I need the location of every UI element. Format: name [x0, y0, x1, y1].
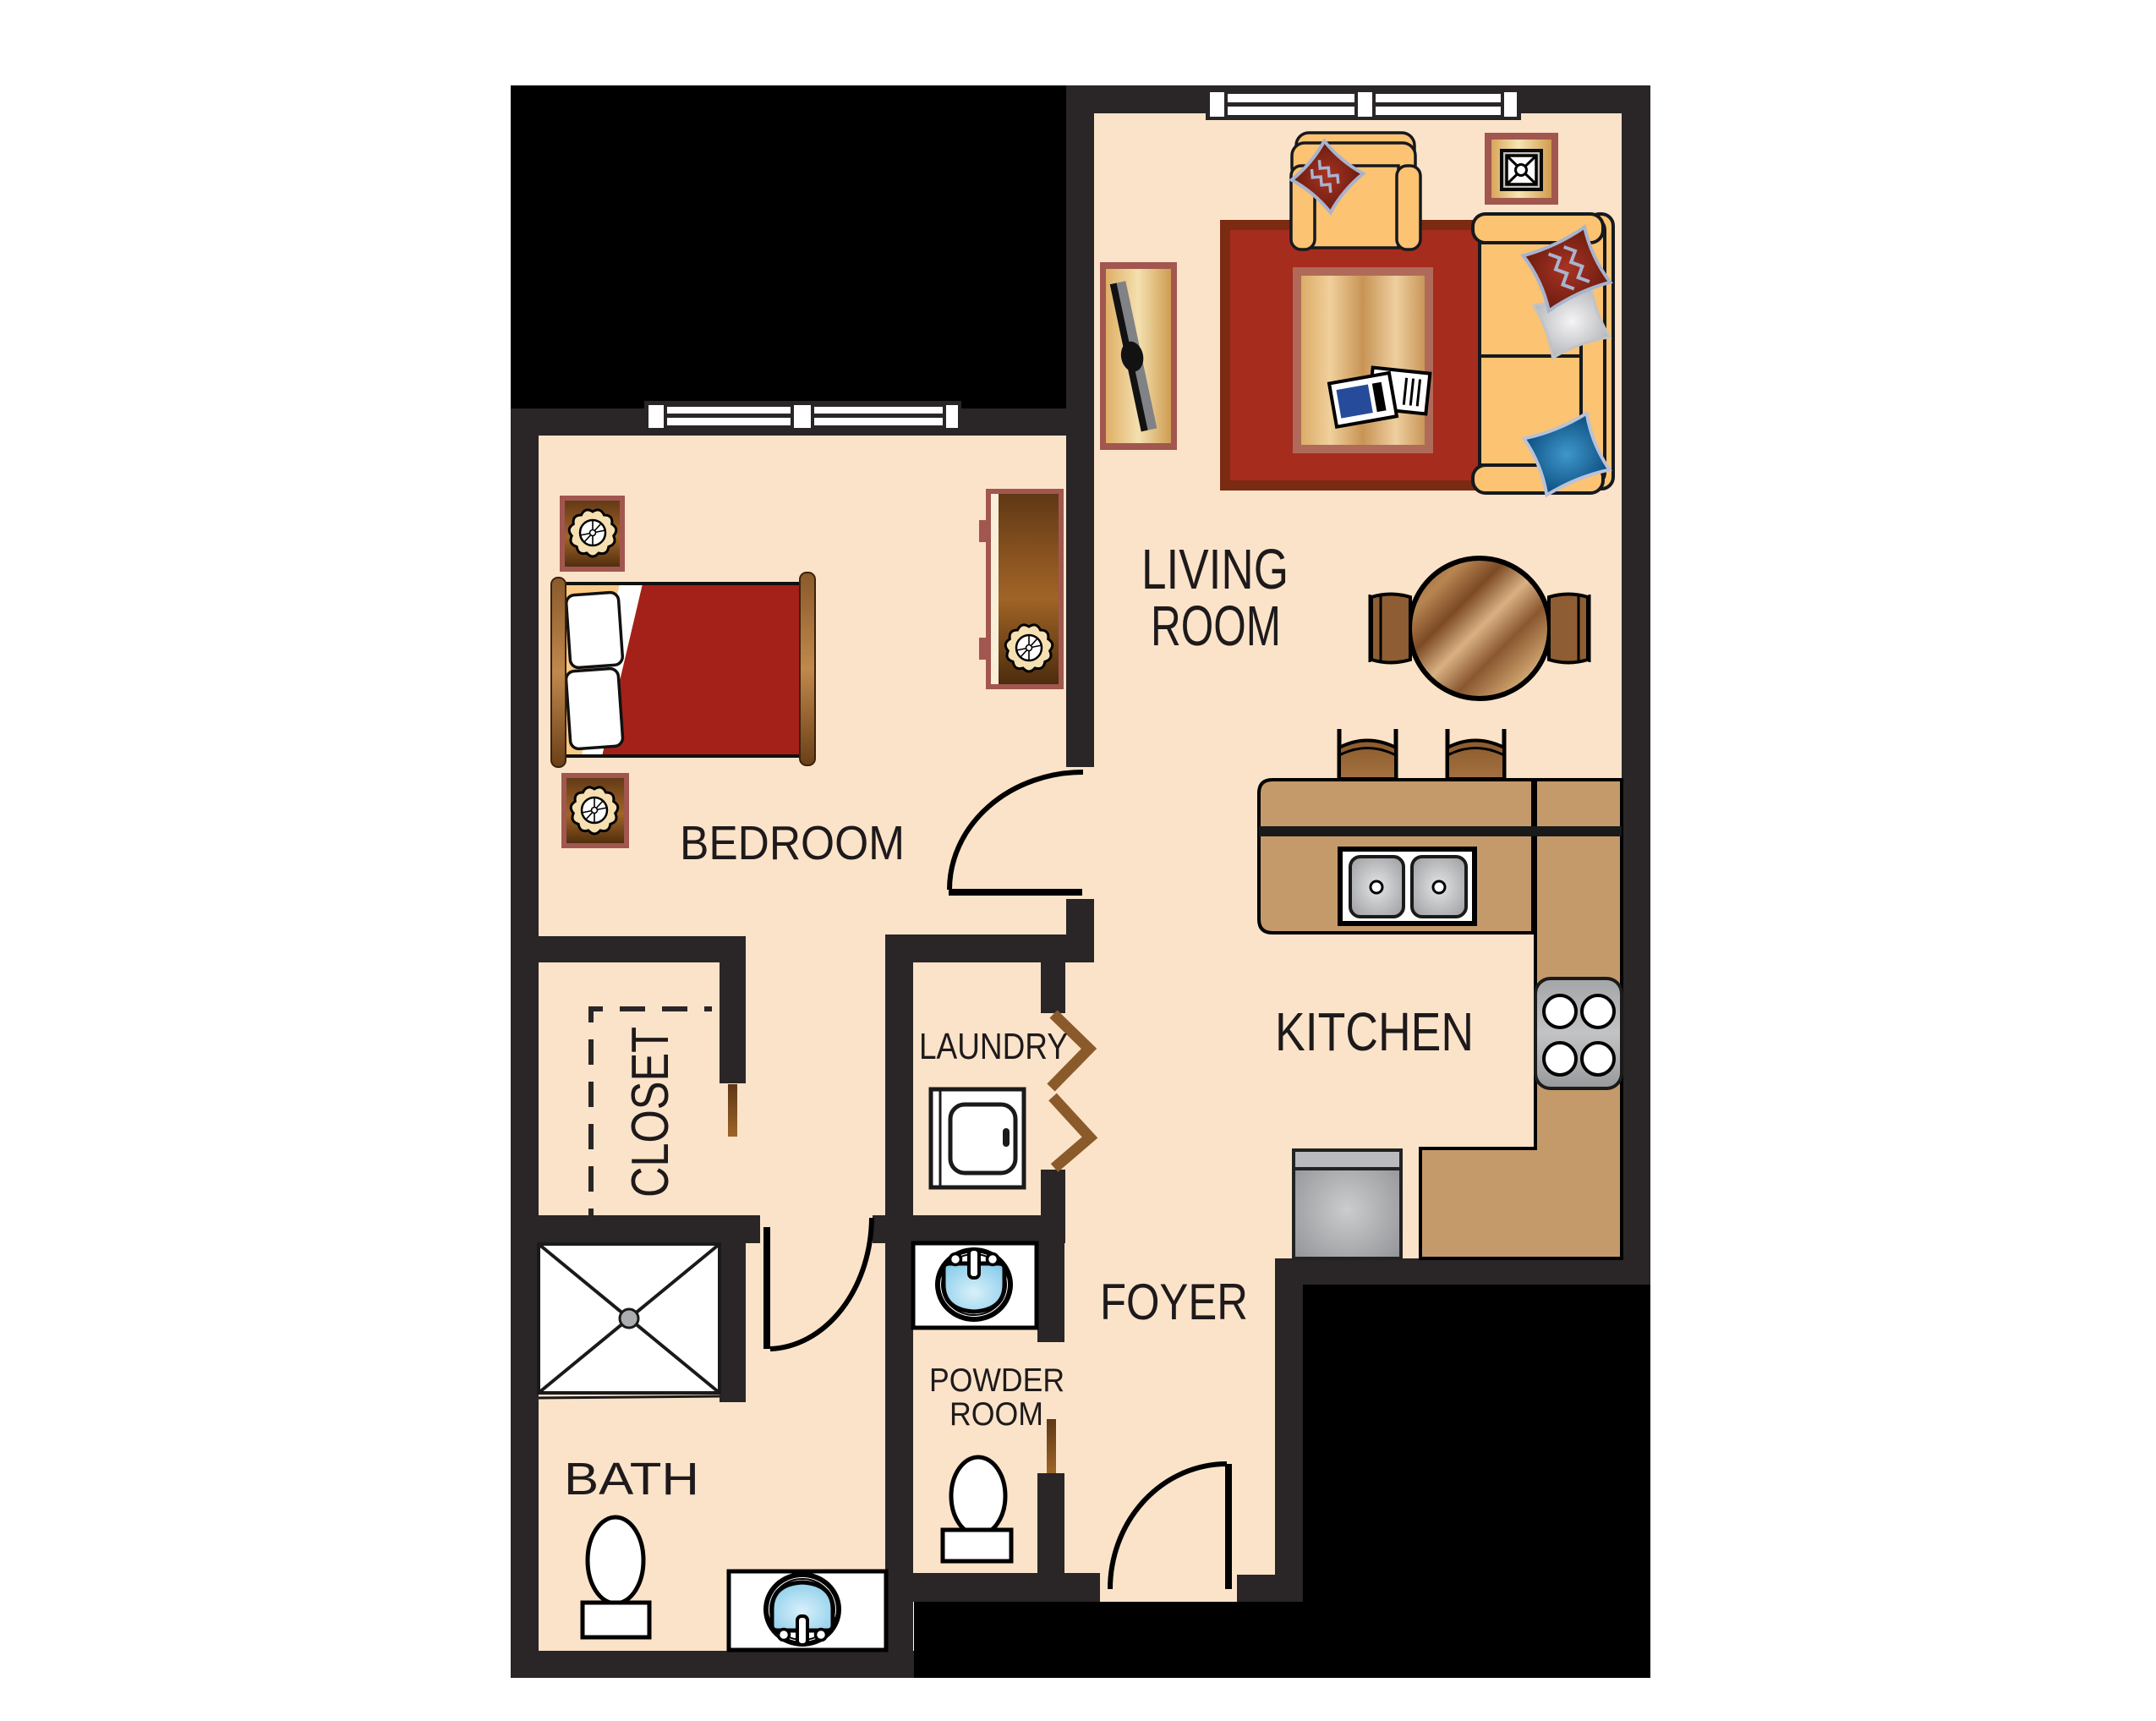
svg-text:KITCHEN: KITCHEN	[1275, 1001, 1474, 1062]
svg-text:CLOSET: CLOSET	[621, 1027, 680, 1198]
svg-text:POWDER: POWDER	[929, 1362, 1064, 1399]
svg-text:BATH: BATH	[564, 1454, 699, 1505]
svg-text:BEDROOM: BEDROOM	[680, 816, 905, 870]
svg-text:LAUNDRY: LAUNDRY	[919, 1026, 1068, 1067]
svg-text:LIVING: LIVING	[1141, 538, 1289, 601]
svg-text:ROOM: ROOM	[949, 1396, 1043, 1433]
svg-text:FOYER: FOYER	[1100, 1274, 1248, 1330]
svg-text:ROOM: ROOM	[1151, 595, 1281, 658]
